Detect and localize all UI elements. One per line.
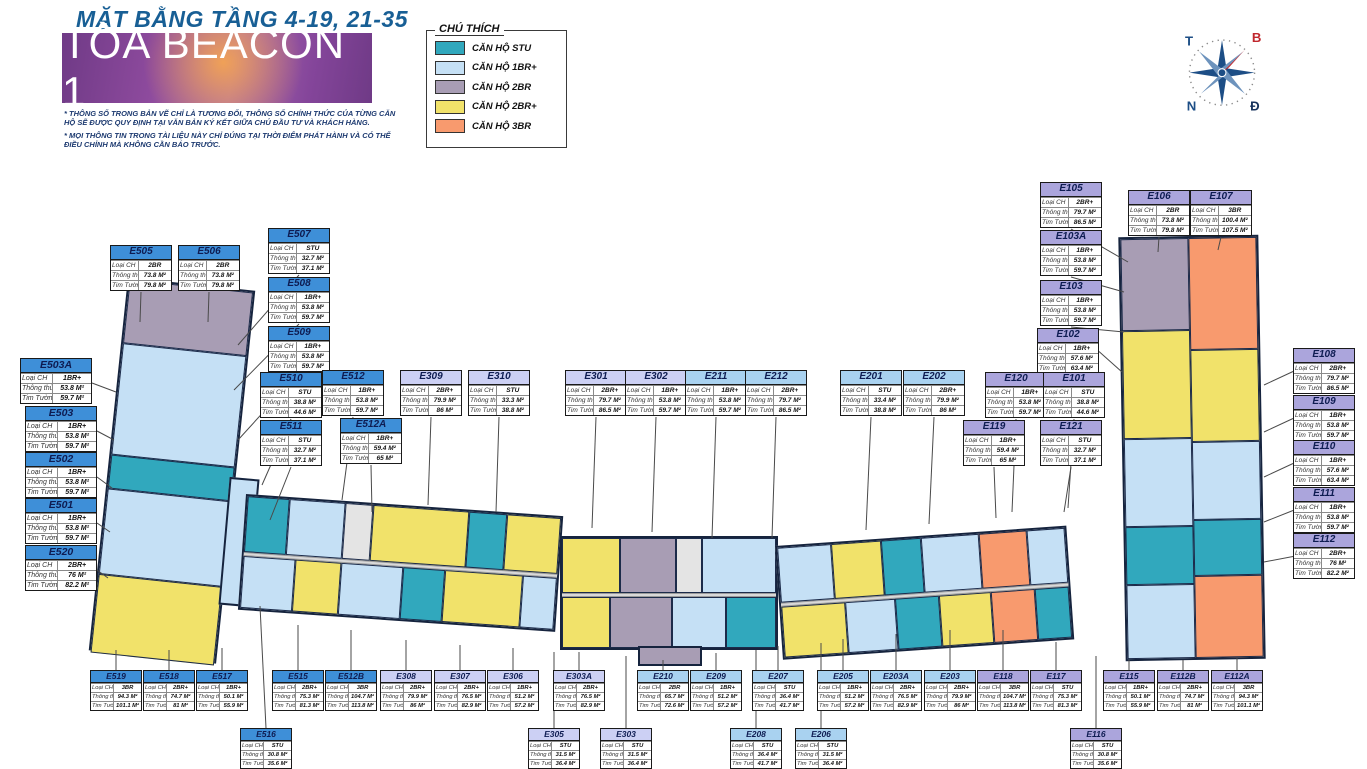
unit-gross-label: Tim Tường [273,702,296,710]
unit-gross-label: Tim Tường [796,760,819,768]
unit-type-row: Loại CH 2BR [111,260,171,270]
unit-type-label: Loại CH [1041,198,1069,207]
unit-id: E502 [26,453,96,467]
unit-type-label: Loại CH [469,386,497,395]
unit-id: E112B [1158,671,1208,683]
unit-id: E210 [638,671,688,683]
unit-net-label: Thông thủy [1294,513,1322,522]
unit-gross-label: Tim Tường [1294,384,1322,393]
unit-gross-label: Tim Tường [323,406,351,415]
unit-id: E211 [686,371,746,385]
disclaimer-line-2: * MỌI THÔNG TIN TRONG TÀI LIỆU NÀY CHỈ Đ… [64,131,399,150]
unit-type-row: Loại CH STU [241,741,291,750]
unit-net-label: Thông thủy [1104,693,1127,701]
building-segment-center [560,536,778,650]
unit-gross-value: 59.7 M² [1322,431,1354,440]
unit-net-label: Thông thủy [1191,216,1219,225]
unit-type-row: Loại CH STU [529,741,579,750]
unit-gross-label: Tim Tường [1071,760,1094,768]
unit-net-value: 75.3 M² [296,693,323,701]
disclaimer-line-1: * THÔNG SỐ TRONG BẢN VẼ CHỈ LÀ TƯƠNG ĐỐI… [64,109,399,128]
unit-type-row: Loại CH STU [601,741,651,750]
unit-callout: E520 Loại CH 2BR+ Thông thủy 76 M² Tim T… [25,545,97,591]
unit-id: E208 [731,729,781,741]
unit-type-value: 1BR+ [369,434,401,443]
unit-type-row: Loại CH 1BR+ [1294,410,1354,420]
unit-net-label: Thông thủy [1031,693,1054,701]
unit-gross-row: Tim Tường 82.9 M² [554,701,604,710]
unit-type-value: 1BR+ [297,342,329,351]
unit-id: E510 [261,373,321,387]
unit-type-value: 2BR [207,261,239,270]
unit-block [111,343,246,467]
unit-block [726,597,776,648]
unit-type-value: STU [819,742,846,750]
unit-type-row: Loại CH 1BR+ [1294,502,1354,512]
unit-gross-row: Tim Tường 59.7 M² [1294,430,1354,440]
unit-gross-row: Tim Tường 59.7 M² [21,393,91,403]
unit-callout: E512 Loại CH 1BR+ Thông thủy 53.8 M² Tim… [322,370,384,416]
unit-net-row: Thông thủy 76.5 M² [435,692,485,701]
floorplan-page: MẶT BẰNG TẦNG 4-19, 21-35 TÒA BEACON 1 *… [0,0,1367,769]
unit-net-row: Thông thủy 65.7 M² [638,692,688,701]
unit-id: E111 [1294,488,1354,502]
unit-gross-label: Tim Tường [111,281,139,290]
unit-block [240,556,296,612]
unit-type-row: Loại CH 1BR+ [818,683,868,692]
unit-gross-row: Tim Tường 36.4 M² [529,759,579,768]
unit-block [1193,519,1262,576]
unit-callout: E210 Loại CH 2BR Thông thủy 65.7 M² Tim … [637,670,689,711]
unit-gross-value: 86 M² [932,406,964,415]
unit-type-value: STU [289,388,321,397]
unit-net-row: Thông thủy 73.8 M² [1129,215,1189,225]
tower-banner: TÒA BEACON 1 [62,33,372,103]
unit-net-value: 53.8 M² [1069,306,1101,315]
unit-type-label: Loại CH [111,261,139,270]
unit-gross-row: Tim Tường 65 M² [964,455,1024,465]
unit-gross-label: Tim Tường [381,702,404,710]
unit-net-row: Thông thủy 51.2 M² [488,692,538,701]
unit-gross-row: Tim Tường 82.9 M² [435,701,485,710]
legend-title: CHÚ THÍCH [435,23,504,36]
unit-net-row: Thông thủy 50.1 M² [1104,692,1154,701]
unit-gross-label: Tim Tường [1158,702,1181,710]
unit-net-row: Thông thủy 30.8 M² [1071,750,1121,759]
unit-id: E512A [341,419,401,433]
unit-gross-value: 101.1 M² [114,702,141,710]
unit-type-value: 1BR+ [1069,246,1101,255]
unit-gross-label: Tim Tường [261,408,289,417]
unit-type-row: Loại CH 1BR+ [269,341,329,351]
unit-gross-row: Tim Tường 59.7 M² [626,405,686,415]
unit-type-value: 1BR+ [220,684,247,692]
unit-callout: E112 Loại CH 2BR+ Thông thủy 76 M² Tim T… [1293,533,1355,579]
unit-callout: E505 Loại CH 2BR Thông thủy 73.8 M² Tim … [110,245,172,291]
unit-net-row: Thông thủy 74.7 M² [144,692,194,701]
unit-callout: E502 Loại CH 1BR+ Thông thủy 53.8 M² Tim… [25,452,97,498]
unit-block [400,567,446,622]
unit-type-value: 2BR [661,684,688,692]
unit-block [1027,528,1069,586]
unit-net-row: Thông thủy 79.9 M² [401,395,461,405]
unit-net-label: Thông thủy [179,271,207,280]
unit-gross-value: 81 M² [167,702,194,710]
unit-gross-row: Tim Tường 82.9 M² [871,701,921,710]
unit-net-row: Thông thủy 79.9 M² [381,692,431,701]
unit-id: E109 [1294,396,1354,410]
unit-gross-row: Tim Tường 59.7 M² [686,405,746,415]
unit-type-value: STU [1072,388,1104,397]
unit-callout: E120 Loại CH 1BR+ Thông thủy 53.8 M² Tim… [985,372,1047,418]
unit-callout: E211 Loại CH 1BR+ Thông thủy 53.8 M² Tim… [685,370,747,416]
unit-type-label: Loại CH [1129,206,1157,215]
unit-net-value: 31.5 M² [819,751,846,759]
unit-net-value: 38.8 M² [1072,398,1104,407]
unit-gross-value: 107.5 M² [1219,226,1251,235]
unit-type-value: 2BR+ [577,684,604,692]
unit-net-value: 76 M² [1322,559,1354,568]
unit-callout: E501 Loại CH 1BR+ Thông thủy 53.8 M² Tim… [25,498,97,544]
unit-type-value: 1BR+ [1127,684,1154,692]
unit-type-row: Loại CH 1BR+ [26,467,96,477]
unit-net-value: 53.8 M² [1069,256,1101,265]
unit-gross-row: Tim Tường 86 M² [925,701,975,710]
unit-block [465,512,507,571]
unit-gross-value: 81 M² [1181,702,1208,710]
unit-net-label: Thông thủy [1294,421,1322,430]
unit-net-value: 53.8 M² [1322,421,1354,430]
unit-type-label: Loại CH [1044,388,1072,397]
unit-net-value: 51.2 M² [511,693,538,701]
unit-gross-value: 57.2 M² [714,702,741,710]
unit-gross-row: Tim Tường 113.8 M² [978,701,1028,710]
unit-net-value: 79.7 M² [774,396,806,405]
unit-net-row: Thông thủy 36.4 M² [753,692,803,701]
unit-gross-row: Tim Tường 86 M² [401,405,461,415]
unit-gross-row: Tim Tường 86.5 M² [1041,217,1101,227]
unit-net-label: Thông thủy [197,693,220,701]
unit-gross-label: Tim Tường [1191,226,1219,235]
unit-gross-label: Tim Tường [691,702,714,710]
unit-net-label: Thông thủy [1071,751,1094,759]
legend: CHÚ THÍCH CĂN HỘ STU CĂN HỘ 1BR+ CĂN HỘ … [426,30,567,148]
unit-net-label: Thông thủy [1038,354,1066,363]
unit-net-row: Thông thủy 38.8 M² [261,397,321,407]
unit-type-row: Loại CH 1BR+ [341,433,401,443]
unit-net-label: Thông thủy [691,693,714,701]
unit-gross-label: Tim Tường [435,702,458,710]
unit-type-row: Loại CH 2BR+ [925,683,975,692]
unit-gross-value: 35.6 M² [264,760,291,768]
unit-id: E302 [626,371,686,385]
unit-type-value: 2BR+ [932,386,964,395]
unit-gross-row: Tim Tường 35.6 M² [1071,759,1121,768]
unit-callout: E512B Loại CH 3BR Thông thủy 104.7 M² Ti… [325,670,377,711]
unit-id: E108 [1294,349,1354,363]
unit-type-row: Loại CH 2BR+ [1294,363,1354,373]
unit-callout: E112A Loại CH 3BR Thông thủy 94.3 M² Tim… [1211,670,1263,711]
unit-net-row: Thông thủy 76 M² [26,570,96,580]
unit-callout: E110 Loại CH 1BR+ Thông thủy 57.6 M² Tim… [1293,440,1355,486]
unit-callout: E307 Loại CH 2BR+ Thông thủy 76.5 M² Tim… [434,670,486,711]
unit-gross-label: Tim Tường [871,702,894,710]
unit-type-value: STU [869,386,901,395]
unit-type-value: 2BR+ [594,386,626,395]
unit-type-label: Loại CH [753,684,776,692]
unit-net-value: 51.2 M² [714,693,741,701]
unit-type-label: Loại CH [26,514,58,523]
unit-net-label: Thông thủy [469,396,497,405]
unit-id: E501 [26,499,96,513]
unit-gross-label: Tim Tường [746,406,774,415]
unit-block [702,538,776,593]
unit-net-label: Thông thủy [638,693,661,701]
unit-net-value: 53.8 M² [654,396,686,405]
unit-type-value: STU [264,742,291,750]
unit-type-label: Loại CH [401,386,429,395]
unit-net-row: Thông thủy 33.3 M² [469,395,529,405]
unit-id: E503A [21,359,91,373]
unit-gross-row: Tim Tường 81.3 M² [273,701,323,710]
unit-callout: E111 Loại CH 1BR+ Thông thủy 53.8 M² Tim… [1293,487,1355,533]
unit-gross-label: Tim Tường [1031,702,1054,710]
unit-gross-label: Tim Tường [1294,523,1322,532]
unit-gross-label: Tim Tường [269,362,297,371]
unit-type-value: STU [1069,436,1101,445]
unit-type-row: Loại CH 3BR [1212,683,1262,692]
unit-net-value: 53.8 M² [1014,398,1046,407]
unit-gross-value: 86 M² [404,702,431,710]
unit-gross-label: Tim Tường [179,281,207,290]
unit-gross-row: Tim Tường 35.6 M² [241,759,291,768]
unit-gross-value: 57.2 M² [841,702,868,710]
unit-type-value: STU [1054,684,1081,692]
unit-id: E518 [144,671,194,683]
unit-type-label: Loại CH [21,374,53,383]
unit-type-row: Loại CH STU [753,683,803,692]
tower-name: TÒA BEACON 1 [62,20,372,116]
unit-type-value: 1BR+ [1069,296,1101,305]
unit-block [939,592,994,647]
unit-gross-row: Tim Tường 59.7 M² [1041,265,1101,275]
unit-net-value: 76.5 M² [577,693,604,701]
unit-net-value: 53.8 M² [297,303,329,312]
unit-net-value: 59.4 M² [369,444,401,453]
unit-type-label: Loại CH [269,342,297,351]
unit-type-value: STU [754,742,781,750]
unit-gross-label: Tim Tường [1044,408,1072,417]
core-block [342,503,374,561]
unit-net-value: 76.5 M² [458,693,485,701]
unit-callout: E205 Loại CH 1BR+ Thông thủy 51.2 M² Tim… [817,670,869,711]
unit-net-label: Thông thủy [904,396,932,405]
unit-gross-row: Tim Tường 37.1 M² [261,455,321,465]
unit-type-row: Loại CH 2BR+ [871,683,921,692]
unit-gross-value: 59.7 M² [58,534,96,543]
unit-net-row: Thông thủy 79.7 M² [1294,373,1354,383]
unit-net-label: Thông thủy [111,271,139,280]
unit-net-value: 32.7 M² [1069,446,1101,455]
unit-gross-value: 86.5 M² [1069,218,1101,227]
unit-type-label: Loại CH [1041,296,1069,305]
unit-gross-row: Tim Tường 59.7 M² [323,405,383,415]
unit-type-row: Loại CH 2BR [179,260,239,270]
unit-gross-row: Tim Tường 72.6 M² [638,701,688,710]
unit-type-value: 1BR+ [1322,456,1354,465]
unit-type-row: Loại CH 2BR+ [26,560,96,570]
legend-color-swatch [435,41,465,55]
unit-type-row: Loại CH STU [261,435,321,445]
unit-net-value: 53.8 M² [351,396,383,405]
unit-type-row: Loại CH 1BR+ [1041,295,1101,305]
unit-net-label: Thông thủy [601,751,624,759]
unit-id: E119 [964,421,1024,435]
unit-type-row: Loại CH 2BR+ [554,683,604,692]
unit-type-label: Loại CH [986,388,1014,397]
unit-net-row: Thông thủy 51.2 M² [818,692,868,701]
unit-id: E507 [269,229,329,243]
unit-net-label: Thông thủy [435,693,458,701]
unit-gross-row: Tim Tường 59.7 M² [26,441,96,451]
unit-gross-label: Tim Tường [269,313,297,322]
building-right-wing [1118,235,1265,661]
unit-type-row: Loại CH 2BR [638,683,688,692]
unit-type-value: 2BR [1157,206,1189,215]
unit-type-row: Loại CH 2BR+ [273,683,323,692]
unit-net-value: 53.8 M² [58,524,96,533]
legend-item-label: CĂN HỘ 3BR [472,121,531,132]
unit-type-label: Loại CH [261,388,289,397]
legend-color-swatch [435,119,465,133]
unit-type-row: Loại CH 3BR [326,683,376,692]
unit-id: E516 [241,729,291,741]
unit-net-value: 74.7 M² [1181,693,1208,701]
unit-type-label: Loại CH [746,386,774,395]
unit-block [1120,238,1190,331]
unit-callout: E209 Loại CH 1BR+ Thông thủy 51.2 M² Tim… [690,670,742,711]
unit-gross-row: Tim Tường 79.8 M² [1129,225,1189,235]
unit-block [620,538,676,593]
unit-id: E207 [753,671,803,683]
unit-type-value: 3BR [1219,206,1251,215]
unit-gross-label: Tim Tường [26,534,58,543]
unit-callout: E101 Loại CH STU Thông thủy 38.8 M² Tim … [1043,372,1105,418]
unit-net-row: Thông thủy 75.3 M² [273,692,323,701]
unit-id: E203A [871,671,921,683]
unit-type-row: Loại CH 2BR+ [401,385,461,395]
unit-type-value: STU [297,244,329,253]
unit-net-label: Thông thủy [871,693,894,701]
unit-net-label: Thông thủy [488,693,511,701]
unit-net-value: 53.8 M² [58,432,96,441]
unit-id: E303A [554,671,604,683]
unit-type-label: Loại CH [529,742,552,750]
unit-type-value: 1BR+ [1322,503,1354,512]
unit-type-label: Loại CH [326,684,349,692]
unit-gross-value: 59.7 M² [1322,523,1354,532]
unit-gross-row: Tim Tường 37.1 M² [269,263,329,273]
unit-type-value: 1BR+ [297,293,329,302]
unit-callout: E306 Loại CH 1BR+ Thông thủy 51.2 M² Tim… [487,670,539,711]
unit-net-label: Thông thủy [978,693,1001,701]
unit-gross-value: 81.3 M² [296,702,323,710]
unit-net-value: 31.5 M² [552,751,579,759]
unit-callout: E206 Loại CH STU Thông thủy 31.5 M² Tim … [795,728,847,769]
unit-net-value: 50.1 M² [220,693,247,701]
unit-gross-row: Tim Tường 86.5 M² [746,405,806,415]
unit-type-value: 2BR+ [58,561,96,570]
unit-block [1192,441,1261,520]
unit-block [777,544,835,603]
unit-net-label: Thông thủy [323,396,351,405]
unit-type-row: Loại CH 1BR+ [1038,343,1098,353]
unit-type-value: STU [776,684,803,692]
unit-type-label: Loại CH [273,684,296,692]
unit-id: E505 [111,246,171,260]
unit-net-value: 33.4 M² [869,396,901,405]
unit-gross-row: Tim Tường 113.8 M² [326,701,376,710]
unit-type-row: Loại CH STU [1031,683,1081,692]
unit-type-row: Loại CH 2BR+ [1041,197,1101,207]
unit-net-label: Thông thủy [554,693,577,701]
unit-id: E503 [26,407,96,421]
unit-block [292,560,342,615]
unit-type-row: Loại CH 1BR+ [197,683,247,692]
unit-net-label: Thông thủy [26,571,58,580]
unit-gross-row: Tim Tường 79.8 M² [111,280,171,290]
unit-net-value: 79.7 M² [594,396,626,405]
unit-gross-value: 57.2 M² [511,702,538,710]
unit-gross-label: Tim Tường [1041,218,1069,227]
legend-color-swatch [435,61,465,75]
unit-gross-label: Tim Tường [401,406,429,415]
unit-gross-value: 38.8 M² [869,406,901,415]
unit-gross-row: Tim Tường 41.7 M² [753,701,803,710]
unit-id: E520 [26,546,96,560]
unit-gross-label: Tim Tường [554,702,577,710]
unit-gross-row: Tim Tường 86 M² [904,405,964,415]
unit-block [1126,584,1195,659]
unit-net-label: Thông thủy [21,384,53,393]
unit-gross-label: Tim Tường [21,394,53,403]
unit-type-row: Loại CH 1BR+ [691,683,741,692]
unit-net-label: Thông thủy [1041,208,1069,217]
compass-label-n: N [1187,98,1197,113]
unit-type-value: 2BR+ [404,684,431,692]
unit-type-value: 2BR+ [948,684,975,692]
unit-gross-row: Tim Tường 81 M² [1158,701,1208,710]
unit-gross-value: 36.4 M² [624,760,651,768]
unit-gross-row: Tim Tường 86.5 M² [1294,383,1354,393]
unit-type-label: Loại CH [1294,364,1322,373]
unit-net-row: Thông thủy 104.7 M² [326,692,376,701]
unit-type-label: Loại CH [144,684,167,692]
unit-block [672,597,726,648]
unit-type-label: Loại CH [566,386,594,395]
unit-net-row: Thông thủy 76.5 M² [554,692,604,701]
unit-net-value: 76.5 M² [894,693,921,701]
unit-type-row: Loại CH STU [1071,741,1121,750]
unit-gross-row: Tim Tường 36.4 M² [601,759,651,768]
unit-net-label: Thông thủy [796,751,819,759]
unit-callout: E207 Loại CH STU Thông thủy 36.4 M² Tim … [752,670,804,711]
unit-net-value: 79.7 M² [1322,374,1354,383]
unit-net-row: Thông thủy 57.6 M² [1038,353,1098,363]
unit-type-value: 1BR+ [714,684,741,692]
unit-callout: E203 Loại CH 2BR+ Thông thủy 79.9 M² Tim… [924,670,976,711]
unit-id: E103A [1041,231,1101,245]
